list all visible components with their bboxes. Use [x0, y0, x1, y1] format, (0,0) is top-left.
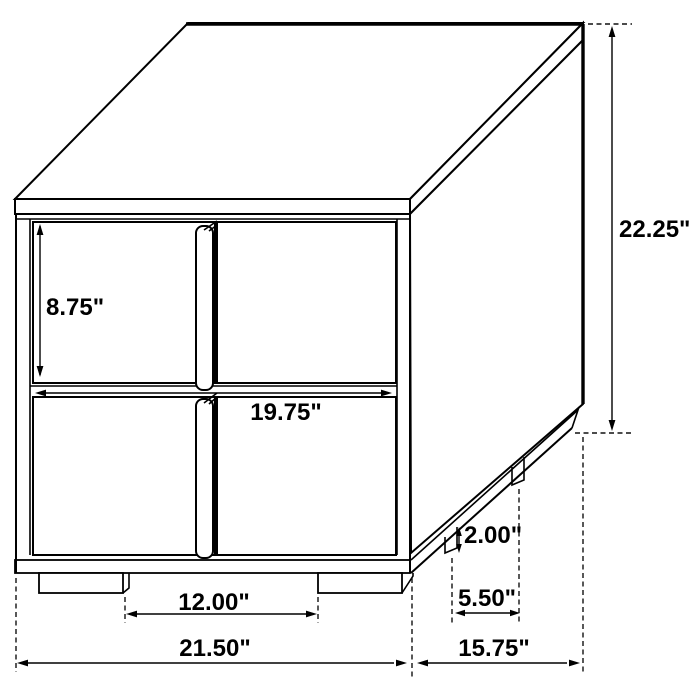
arrowhead-right	[306, 611, 317, 618]
arrowhead-up	[609, 26, 616, 37]
arrowhead-left	[17, 660, 28, 667]
dim-label-front-leg-gap: 12.00"	[178, 589, 249, 616]
dim-label-side-leg-spacing: 5.50"	[458, 585, 516, 612]
dim-label-overall-width: 21.50"	[179, 635, 250, 662]
dim-label-leg-height: 2.00"	[464, 522, 522, 549]
arrowhead-left	[417, 660, 428, 667]
arrowhead-right	[381, 390, 392, 397]
drawer-handle-top	[196, 226, 213, 390]
arrowhead-right	[569, 660, 580, 667]
dim-label-drawer-width: 19.75"	[250, 399, 321, 426]
arrowhead-left	[35, 390, 46, 397]
arrowhead-right	[396, 660, 407, 667]
nightstand-dimension-drawing: 8.75" 22.25" 19.75"	[0, 0, 700, 700]
dim-label-overall-height: 22.25"	[619, 216, 690, 243]
front-base-rail	[15, 560, 410, 573]
drawer-handle-bottom	[196, 399, 213, 558]
front-leg-right	[318, 573, 402, 593]
arrowhead-left	[126, 611, 137, 618]
diagram-canvas: 8.75" 22.25" 19.75"	[0, 0, 700, 700]
dim-leg-height: 2.00"	[456, 522, 522, 553]
dim-label-drawer-opening-height: 8.75"	[46, 294, 104, 321]
dim-front-leg-gap: 12.00"	[125, 589, 318, 623]
front-leg-left	[39, 573, 123, 593]
dim-label-overall-depth: 15.75"	[458, 635, 529, 662]
arrowhead-down	[609, 420, 616, 431]
drawer-top-right	[217, 222, 396, 383]
top-slab-front-edge	[15, 199, 410, 214]
drawer-bottom-left	[33, 397, 215, 555]
dim-overall-height: 22.25"	[575, 24, 690, 433]
